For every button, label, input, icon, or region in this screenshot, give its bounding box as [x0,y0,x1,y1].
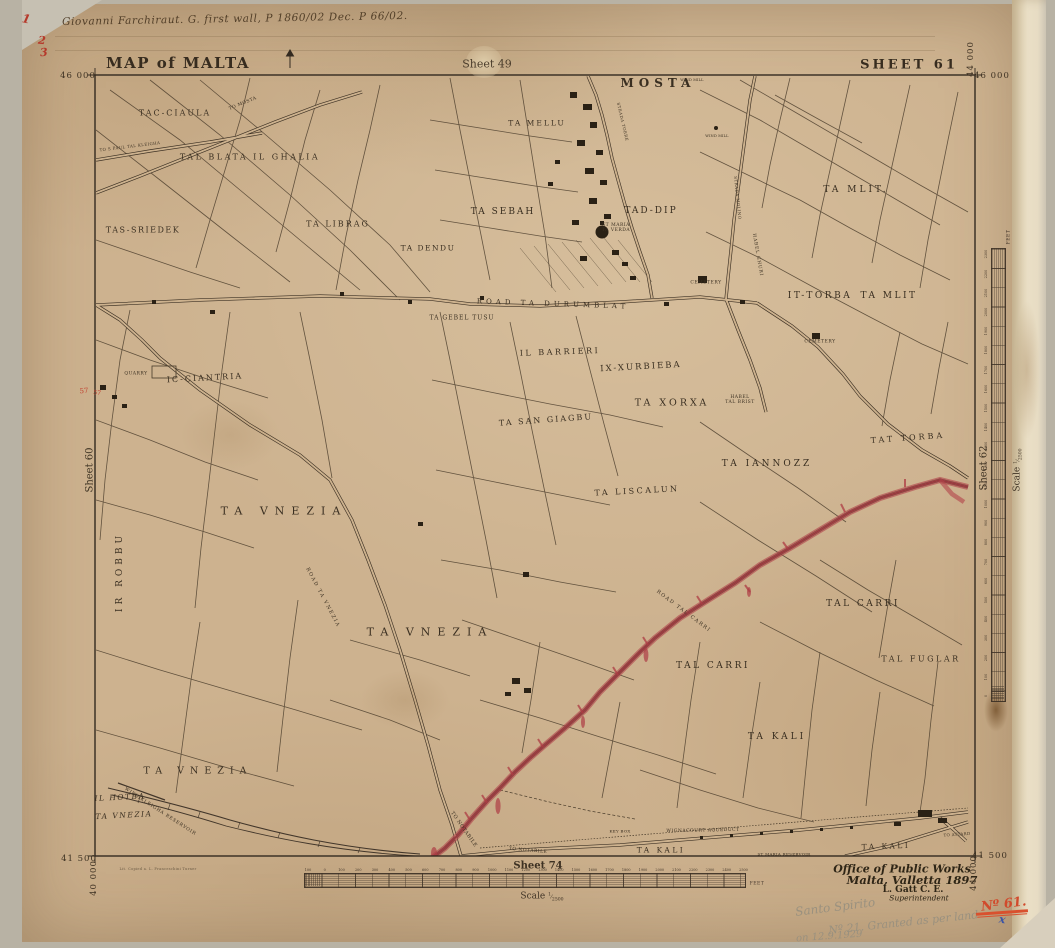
right-scale-bar [991,248,1006,702]
blue-x-mark: x [998,913,1006,927]
scale-denominator: 2500 [552,898,564,903]
scale-fraction: 1⁄2500 [1015,448,1021,464]
red-highlighted-road [431,479,968,859]
roads-casing [96,76,968,858]
buildings [100,71,947,839]
adjacent-sheet-left: Sheet 60 [85,447,96,492]
grid-coordinate: 44 000 [966,41,976,77]
roads-core [96,76,968,858]
bottom-scale-bar [304,873,746,888]
grid-coordinate: 40 000 [89,860,99,896]
right-scale-label: Scale 1⁄2500 [1012,448,1023,491]
bottom-scale-unit: FEET [750,882,765,887]
town-plot-hatching [520,238,652,292]
bottom-scale-label: Scale 1⁄2500 [520,891,563,902]
scanned-map-page: MAP of MALTA Sheet 49 SHEET 61 Sheet 60 … [0,0,1055,948]
imprint-title: Superintendent [889,894,948,903]
field-boundaries [96,78,968,822]
sheet-number: SHEET 61 [860,58,958,73]
scale-word: Scale [520,891,545,901]
map-title: MAP of MALTA [106,54,250,72]
scale-word: Scale [1012,467,1022,492]
red-margin-mark-3: 3 [40,46,49,60]
grid-coordinate: 46 000 [60,71,96,81]
scale-numerator: 1 [548,893,551,898]
grid-coordinate: 46 000 [974,71,1010,81]
benchmark-symbol [287,50,294,68]
right-scale-bar-subdivision [991,686,1004,700]
map-frame [95,75,975,856]
bottom-scale-bar-subdivision [304,873,321,886]
frame-corner-ticks [88,68,982,863]
scale-numerator: 1 [1014,461,1019,464]
stream [108,783,420,856]
right-scale-unit: FEET [1007,230,1012,245]
adjacent-sheet-right: Sheet 62 [979,445,990,490]
map-artwork [0,0,1055,948]
adjacent-sheet-bottom: Sheet 74 [513,861,562,872]
adjacent-sheet-top: Sheet 49 [462,58,512,71]
map-interior [96,71,968,859]
scale-fraction: 1⁄2500 [548,894,564,900]
scale-denominator: 2500 [1019,448,1024,460]
